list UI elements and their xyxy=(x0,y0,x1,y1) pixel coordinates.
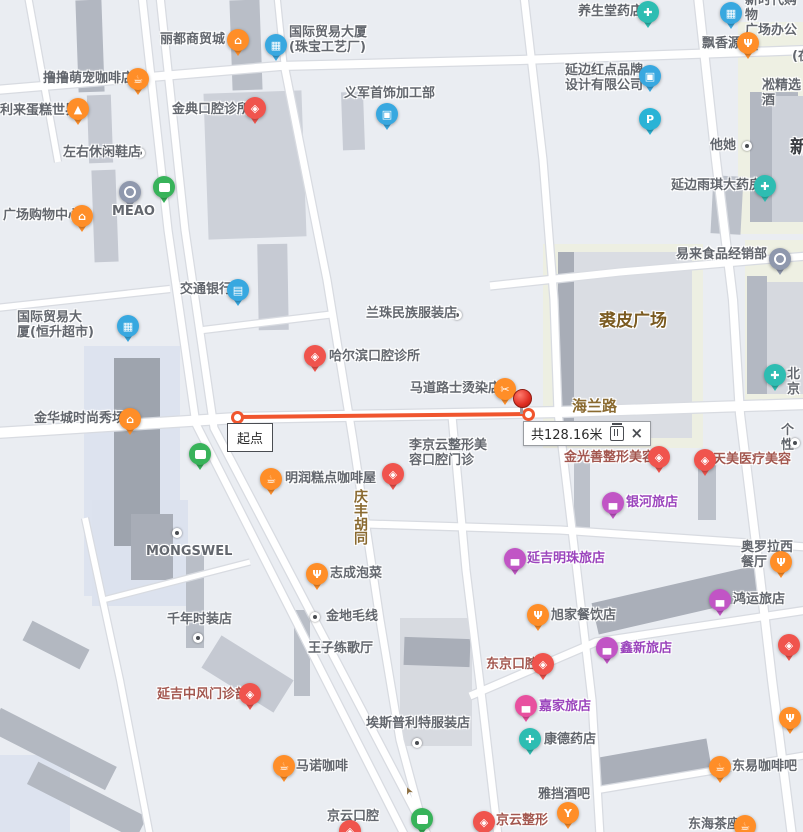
coffee-glyph: ☕ xyxy=(740,821,750,832)
road xyxy=(452,416,498,832)
building-glyph: ▦ xyxy=(726,8,736,19)
dental-pin-icon[interactable]: ◈ xyxy=(778,634,800,656)
road xyxy=(0,289,170,308)
card-pin-icon[interactable]: ▤ xyxy=(227,279,249,301)
poi-label: 延边雨琪大药房 xyxy=(671,178,762,193)
poi-label: 庆丰胡同 xyxy=(352,489,367,545)
coffee-glyph: ☕ xyxy=(279,761,289,772)
poi-dot[interactable] xyxy=(310,612,320,622)
circlemark-pin-icon[interactable] xyxy=(119,181,141,203)
restaurant-glyph: Ψ xyxy=(533,610,542,621)
restaurant-pin-icon[interactable]: Ψ xyxy=(527,604,549,626)
poi-label: 明润糕点咖啡屋 xyxy=(285,471,376,486)
poi-label: 金地毛线 xyxy=(326,609,378,624)
poi-label: 旭家餐饮店 xyxy=(551,608,616,623)
parking-glyph: P xyxy=(646,114,654,125)
bus-glyph xyxy=(159,183,170,192)
poi-label: 京云整形 xyxy=(496,813,548,828)
ring-glyph xyxy=(774,253,786,265)
bus-pin-icon[interactable] xyxy=(189,443,211,465)
poi-label: 凇精选酒 xyxy=(762,78,803,108)
poi-label: 王子练歌厅 xyxy=(308,641,373,656)
bus-pin-icon[interactable] xyxy=(153,176,175,198)
firstaid-pin-icon[interactable]: ✚ xyxy=(754,175,776,197)
bag-glyph: ⌂ xyxy=(78,211,86,222)
poi-dot[interactable] xyxy=(172,528,182,538)
dental-glyph: ◈ xyxy=(701,455,709,466)
poi-label: 延吉中风门诊部 xyxy=(157,687,248,702)
bed-pin-icon[interactable]: ▄ xyxy=(515,695,537,717)
parking-pin-icon[interactable]: P xyxy=(639,108,661,130)
poi-label: 鑫新旅店 xyxy=(620,641,672,656)
poi-label: 马道路士烫染店 xyxy=(410,381,501,396)
dental-glyph: ◈ xyxy=(655,452,663,463)
building-pin-icon[interactable]: ▦ xyxy=(265,34,287,56)
card-glyph: ▤ xyxy=(233,285,243,296)
bus-glyph xyxy=(195,450,206,459)
restaurant-pin-icon[interactable]: Ψ xyxy=(770,551,792,573)
poi-label: 嘉家旅店 xyxy=(539,699,591,714)
bag-pin-icon[interactable]: ⌂ xyxy=(71,205,93,227)
dental-glyph: ◈ xyxy=(251,103,259,114)
scissors-glyph: ✂ xyxy=(500,384,509,395)
poi-label: 他她 xyxy=(710,138,736,153)
poi-label: 新 xyxy=(790,140,803,155)
coffee-glyph: ☕ xyxy=(133,74,143,85)
poi-label: 撸撸萌宠咖啡店 xyxy=(43,71,134,86)
firstaid-glyph: ✚ xyxy=(760,181,769,192)
coffee-pin-icon[interactable]: ☕ xyxy=(127,68,149,90)
coffee-pin-icon[interactable]: ☕ xyxy=(709,756,731,778)
dental-glyph: ◈ xyxy=(785,640,793,651)
bed-pin-icon[interactable]: ▄ xyxy=(596,637,618,659)
poi-label: MONGSWEL xyxy=(146,544,232,559)
bag-glyph: ⌂ xyxy=(126,414,134,425)
map-canvas[interactable]: 起点 共128.16米 × ⌂丽都商贸城▦国际贸易大厦 (珠宝工艺厂)✚养生堂药… xyxy=(0,0,803,832)
coffee-pin-icon[interactable]: ☕ xyxy=(260,468,282,490)
dental-glyph: ◈ xyxy=(346,826,354,832)
poi-label: 银河旅店 xyxy=(626,495,678,510)
firstaid-pin-icon[interactable]: ✚ xyxy=(519,728,541,750)
poi-label: 李京云整形美 容口腔门诊 xyxy=(409,438,487,468)
poi-label: (在 xyxy=(792,49,803,64)
poi-dot[interactable] xyxy=(193,633,203,643)
dental-glyph: ◈ xyxy=(389,469,397,480)
circlemark-pin-icon[interactable] xyxy=(769,248,791,270)
coffee-glyph: ☕ xyxy=(715,762,725,773)
poi-dot[interactable] xyxy=(412,738,422,748)
dental-glyph: ◈ xyxy=(246,689,254,700)
road xyxy=(103,562,250,600)
start-point-label-box: 起点 xyxy=(227,423,273,452)
building-glyph: ▦ xyxy=(271,40,281,51)
road xyxy=(85,518,150,832)
cake-glyph: ▲ xyxy=(74,104,82,115)
poi-label: 交通银行 xyxy=(180,282,232,297)
delete-measurement-icon[interactable] xyxy=(610,426,624,441)
poi-label: 金典口腔诊所 xyxy=(172,102,250,117)
dental-glyph: ◈ xyxy=(480,817,488,828)
bed-glyph: ▄ xyxy=(716,595,724,606)
poi-label: 金华城时尚秀场 xyxy=(34,411,125,426)
bag-pin-icon[interactable]: ⌂ xyxy=(227,29,249,51)
dental-pin-icon[interactable]: ◈ xyxy=(304,345,326,367)
poi-label: 志成泡菜 xyxy=(330,566,382,581)
poi-label: 国际贸易大厦 (珠宝工艺厂) xyxy=(289,25,367,55)
poi-label: 飘香源 xyxy=(702,36,741,51)
building-glyph: ▦ xyxy=(123,321,133,332)
cocktail-pin-icon[interactable]: Y xyxy=(557,802,579,824)
bed-glyph: ▄ xyxy=(511,554,519,565)
cross-glyph: ✚ xyxy=(643,7,652,18)
bus-pin-icon[interactable] xyxy=(411,808,433,830)
building-pin-icon[interactable]: ▦ xyxy=(720,2,742,24)
cake-pin-icon[interactable]: ▲ xyxy=(67,98,89,120)
restaurant-glyph: Ψ xyxy=(743,38,752,49)
dental-pin-icon[interactable]: ◈ xyxy=(532,653,554,675)
poi-label: 埃斯普利特服装店 xyxy=(366,716,470,731)
cross-pin-icon[interactable]: ✚ xyxy=(637,1,659,23)
coffee-glyph: ☕ xyxy=(266,474,276,485)
poi-label: 延吉明珠旅店 xyxy=(527,551,605,566)
dental-pin-icon[interactable]: ◈ xyxy=(473,811,495,832)
poi-label: 哈尔滨口腔诊所 xyxy=(329,349,420,364)
poi-label: 国际贸易大 厦(恒升超市) xyxy=(17,310,94,340)
poi-label: 兰珠民族服装店 xyxy=(366,306,457,321)
coffee-pin-icon[interactable]: ☕ xyxy=(734,815,756,832)
briefcase-glyph: ▣ xyxy=(382,109,392,120)
poi-label: 丽都商贸城 xyxy=(160,32,225,47)
building-pin-icon[interactable]: ▦ xyxy=(117,315,139,337)
poi-dot[interactable] xyxy=(742,141,752,151)
poi-label: 天美医疗美容 xyxy=(713,452,791,467)
ring-glyph xyxy=(124,186,136,198)
restaurant-glyph: Ψ xyxy=(785,713,794,724)
restaurant-pin-icon[interactable]: Ψ xyxy=(779,707,801,729)
bed-pin-icon[interactable]: ▄ xyxy=(709,589,731,611)
briefcase-pin-icon[interactable]: ▣ xyxy=(376,103,398,125)
poi-label: 海兰路 xyxy=(572,399,617,414)
dental-pin-icon[interactable]: ◈ xyxy=(244,97,266,119)
poi-label: 千年时装店 xyxy=(167,612,232,627)
measure-pushpin-icon[interactable] xyxy=(513,389,532,408)
poi-label: MEAO xyxy=(112,204,155,219)
dental-pin-icon[interactable]: ◈ xyxy=(382,463,404,485)
poi-label: 裘皮广场 xyxy=(599,314,667,329)
poi-label: 鸿运旅店 xyxy=(733,592,785,607)
poi-label: 康德药店 xyxy=(544,732,596,747)
poi-label: 延边红点品牌 设计有限公司 xyxy=(565,63,643,93)
dental-pin-icon[interactable]: ◈ xyxy=(694,449,716,471)
restaurant-pin-icon[interactable]: Ψ xyxy=(737,32,759,54)
briefcase-glyph: ▣ xyxy=(645,71,655,82)
bag-pin-icon[interactable]: ⌂ xyxy=(119,408,141,430)
poi-label: 马诺咖啡 xyxy=(296,759,348,774)
bed-pin-icon[interactable]: ▄ xyxy=(504,548,526,570)
bag-glyph: ⌂ xyxy=(234,35,242,46)
poi-label: 东海茶座 xyxy=(688,817,740,832)
poi-label: 东易咖啡吧 xyxy=(732,759,797,774)
distance-box: 共128.16米 × xyxy=(523,421,651,446)
start-point-label: 起点 xyxy=(237,428,263,447)
poi-label: 左右休闲鞋店 xyxy=(63,145,141,160)
bed-pin-icon[interactable]: ▄ xyxy=(602,492,624,514)
restaurant-glyph: Ψ xyxy=(312,569,321,580)
poi-label: 广场购物中心 xyxy=(3,208,81,223)
poi-label: 雅挡酒吧 xyxy=(538,787,590,802)
measure-end-node[interactable] xyxy=(522,408,535,421)
distance-label: 共128.16米 xyxy=(531,424,603,443)
bed-glyph: ▄ xyxy=(522,701,530,712)
poi-label: 易来食品经销部 xyxy=(676,247,767,262)
firstaid-glyph: ✚ xyxy=(525,734,534,745)
road xyxy=(203,314,335,330)
firstaid-glyph: ✚ xyxy=(770,370,779,381)
poi-label: 义军首饰加工部 xyxy=(344,86,435,101)
poi-label: 养生堂药店 xyxy=(578,4,643,19)
dental-pin-icon[interactable]: ◈ xyxy=(648,446,670,468)
bus-glyph xyxy=(417,815,428,824)
bed-glyph: ▄ xyxy=(603,643,611,654)
dental-pin-icon[interactable]: ◈ xyxy=(239,683,261,705)
poi-label: 金光善整形美容 xyxy=(564,450,655,465)
firstaid-pin-icon[interactable]: ✚ xyxy=(764,364,786,386)
poi-label: 北京 xyxy=(787,367,803,397)
restaurant-glyph: Ψ xyxy=(776,557,785,568)
restaurant-pin-icon[interactable]: Ψ xyxy=(306,563,328,585)
dental-glyph: ◈ xyxy=(539,659,547,670)
poi-dot[interactable] xyxy=(790,438,800,448)
close-measurement-icon[interactable]: × xyxy=(631,426,644,441)
poi-label: 东京口腔 xyxy=(486,657,538,672)
cocktail-glyph: Y xyxy=(564,808,572,819)
briefcase-pin-icon[interactable]: ▣ xyxy=(639,65,661,87)
dental-glyph: ◈ xyxy=(311,351,319,362)
bed-glyph: ▄ xyxy=(609,498,617,509)
coffee-pin-icon[interactable]: ☕ xyxy=(273,755,295,777)
